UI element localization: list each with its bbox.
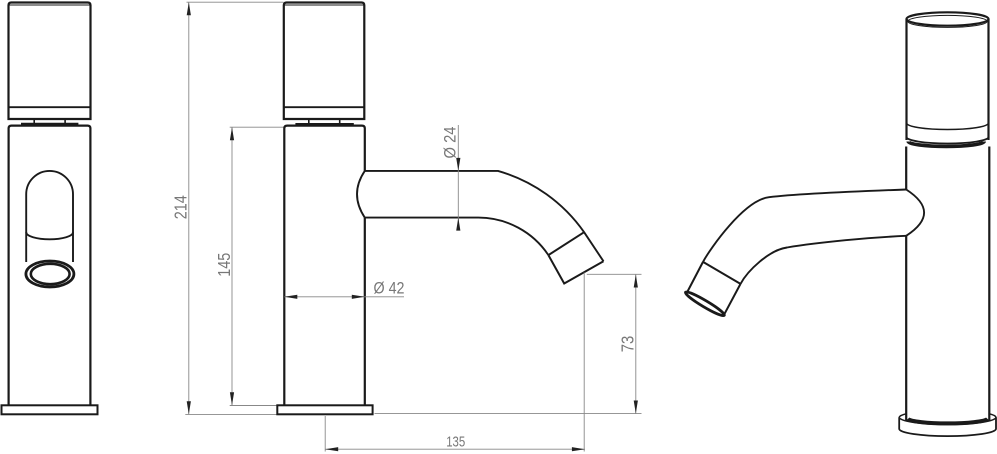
svg-text:135: 135 bbox=[446, 433, 465, 450]
svg-text:Ø 42: Ø 42 bbox=[374, 279, 405, 298]
svg-text:Ø 24: Ø 24 bbox=[441, 127, 460, 159]
svg-text:214: 214 bbox=[171, 195, 191, 219]
svg-text:145: 145 bbox=[214, 253, 234, 277]
svg-text:73: 73 bbox=[618, 336, 638, 353]
